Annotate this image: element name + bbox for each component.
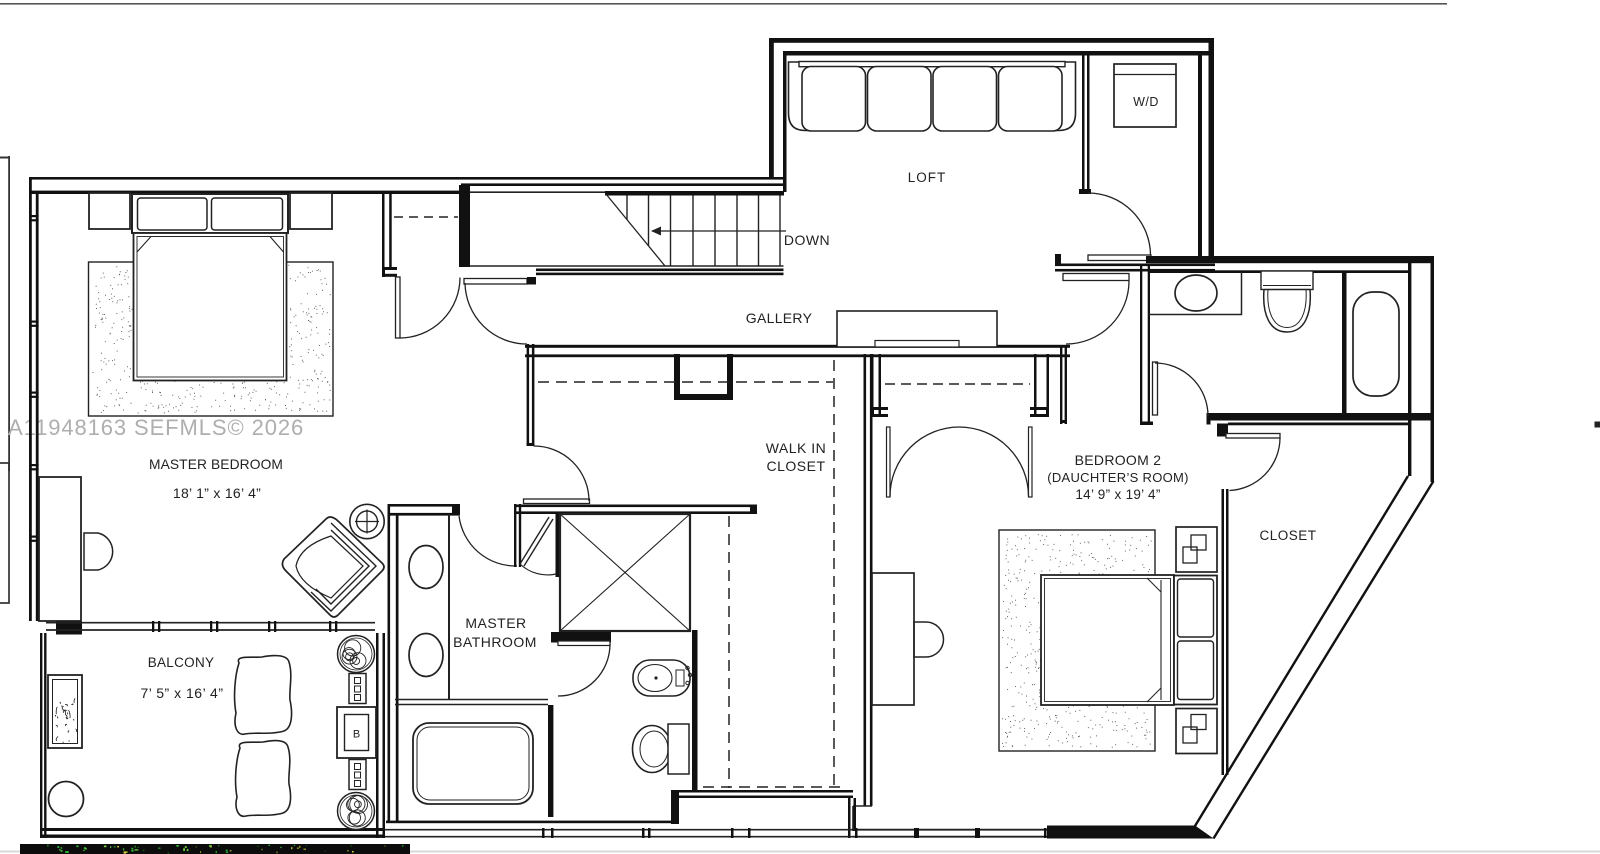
svg-text:LOFT: LOFT <box>908 170 947 185</box>
svg-text:MASTER: MASTER <box>465 615 526 631</box>
svg-text:18’ 1” x 16’ 4”: 18’ 1” x 16’ 4” <box>173 485 261 501</box>
svg-text:DOWN: DOWN <box>784 232 830 248</box>
svg-text:BALCONY: BALCONY <box>148 655 215 670</box>
svg-text:B: B <box>353 729 360 741</box>
svg-text:7’ 5” x 16’ 4”: 7’ 5” x 16’ 4” <box>141 685 224 701</box>
svg-text:WALK IN: WALK IN <box>766 440 827 456</box>
svg-text:GALLERY: GALLERY <box>746 310 813 326</box>
svg-text:BATHROOM: BATHROOM <box>453 634 537 650</box>
svg-text:BEDROOM 2: BEDROOM 2 <box>1075 452 1162 468</box>
svg-text:A11948163 SEFMLS© 2026: A11948163 SEFMLS© 2026 <box>8 415 304 440</box>
svg-text:14’ 9” x 19’ 4”: 14’ 9” x 19’ 4” <box>1075 487 1160 502</box>
svg-text:MASTER BEDROOM: MASTER BEDROOM <box>149 457 283 472</box>
svg-text:W/D: W/D <box>1133 95 1159 109</box>
svg-text:CLOSET: CLOSET <box>766 458 825 474</box>
svg-text:CLOSET: CLOSET <box>1259 528 1316 543</box>
svg-text:(DAUCHTER’S ROOM): (DAUCHTER’S ROOM) <box>1047 470 1189 485</box>
